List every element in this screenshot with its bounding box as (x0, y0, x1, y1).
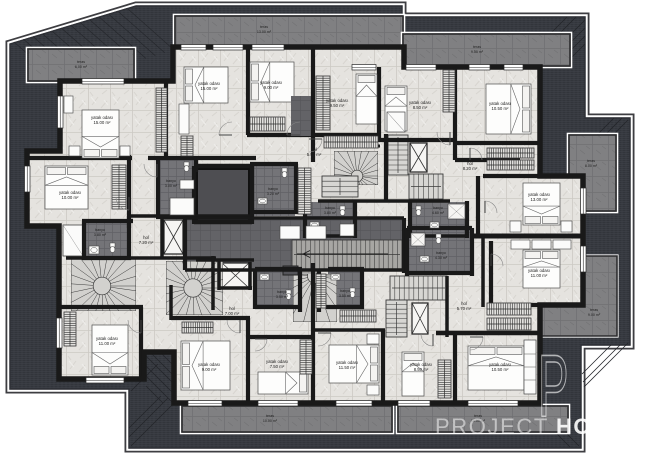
svg-text:11.00 m²: 11.00 m² (99, 341, 116, 346)
svg-text:5.70 m²: 5.70 m² (457, 306, 472, 311)
svg-text:10.50 m²: 10.50 m² (492, 367, 510, 372)
svg-text:banyo: banyo (166, 179, 176, 183)
svg-text:3.50 m²: 3.50 m² (339, 294, 352, 298)
svg-text:9.00 m²: 9.00 m² (202, 367, 217, 372)
svg-text:11.50 m²: 11.50 m² (339, 365, 356, 370)
svg-text:banyo: banyo (268, 187, 278, 191)
svg-text:banyo: banyo (436, 251, 446, 255)
svg-text:4.30 m²: 4.30 m² (435, 256, 448, 260)
svg-text:banyo: banyo (277, 290, 287, 294)
svg-text:10.00 m²: 10.00 m² (62, 195, 80, 200)
svg-text:7.50 m²: 7.50 m² (270, 364, 285, 369)
svg-text:banyo: banyo (325, 206, 335, 210)
svg-text:9.50 m²: 9.50 m² (330, 103, 345, 108)
svg-text:10.50 m²: 10.50 m² (492, 106, 510, 111)
svg-text:10.00 m²: 10.00 m² (263, 419, 278, 423)
svg-text:3.50 m²: 3.50 m² (276, 295, 289, 299)
svg-text:8.50 m²: 8.50 m² (414, 367, 429, 372)
svg-text:teras: teras (77, 60, 85, 64)
svg-text:3.20 m²: 3.20 m² (267, 192, 280, 196)
svg-text:3.80 m²: 3.80 m² (324, 211, 337, 215)
svg-text:7.00 m²: 7.00 m² (225, 311, 240, 316)
svg-text:teras: teras (260, 25, 268, 29)
svg-text:8.20 m²: 8.20 m² (463, 166, 478, 171)
svg-text:6.00 m²: 6.00 m² (75, 65, 88, 69)
svg-text:9.50 m²: 9.50 m² (471, 50, 484, 54)
svg-text:3.80 m²: 3.80 m² (94, 233, 107, 237)
svg-text:teras: teras (590, 308, 598, 312)
svg-text:11.00 m²: 11.00 m² (531, 273, 548, 278)
svg-text:5.50 m²: 5.50 m² (307, 152, 322, 157)
svg-text:3.00 m²: 3.00 m² (165, 184, 178, 188)
svg-text:13.00 m²: 13.00 m² (531, 197, 549, 202)
svg-text:15.00 m²: 15.00 m² (201, 86, 219, 91)
svg-text:8.50 m²: 8.50 m² (413, 105, 428, 110)
svg-text:HO: HO (556, 414, 592, 439)
svg-text:teras: teras (473, 45, 481, 49)
svg-text:teras: teras (587, 159, 595, 163)
svg-text:13.00 m²: 13.00 m² (257, 30, 272, 34)
svg-text:9.00 m²: 9.00 m² (588, 313, 601, 317)
svg-text:banyo: banyo (340, 289, 350, 293)
svg-text:4.60 m²: 4.60 m² (432, 211, 445, 215)
svg-text:8.00 m²: 8.00 m² (585, 164, 598, 168)
svg-text:teras: teras (266, 414, 274, 418)
svg-text:PROJECT: PROJECT (435, 414, 549, 439)
svg-text:banyo: banyo (95, 228, 105, 232)
svg-text:banyo: banyo (433, 206, 443, 210)
svg-text:9.00 m²: 9.00 m² (264, 85, 279, 90)
svg-text:7.20 m²: 7.20 m² (139, 240, 154, 245)
svg-text:15.00 m²: 15.00 m² (94, 120, 112, 125)
